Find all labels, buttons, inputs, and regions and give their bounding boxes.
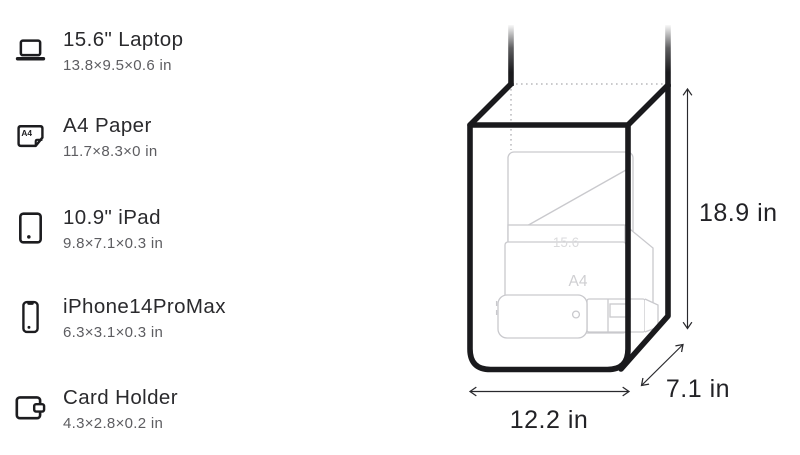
bag-contents: 15.6 A4 <box>497 152 658 338</box>
inner-a4-label: A4 <box>569 273 588 290</box>
bag-capacity-infographic: 15.6" Laptop 13.8×9.5×0.6 in A4 A4 Paper… <box>0 0 800 455</box>
inner-laptop-label: 15.6 <box>553 235 579 250</box>
inner-card-holder <box>587 299 658 332</box>
bag-top-right-edge <box>628 85 668 125</box>
bag-hidden-edges <box>511 84 668 150</box>
width-dimension-label: 12.2 in <box>510 406 589 434</box>
depth-dimension-label: 7.1 in <box>666 375 730 403</box>
inner-iphone <box>497 295 587 338</box>
bag-top-left-edge <box>470 84 511 125</box>
bag-straps <box>511 25 668 87</box>
bag-diagram: 15.6 A4 <box>0 0 800 455</box>
height-dimension-label: 18.9 in <box>699 199 778 227</box>
